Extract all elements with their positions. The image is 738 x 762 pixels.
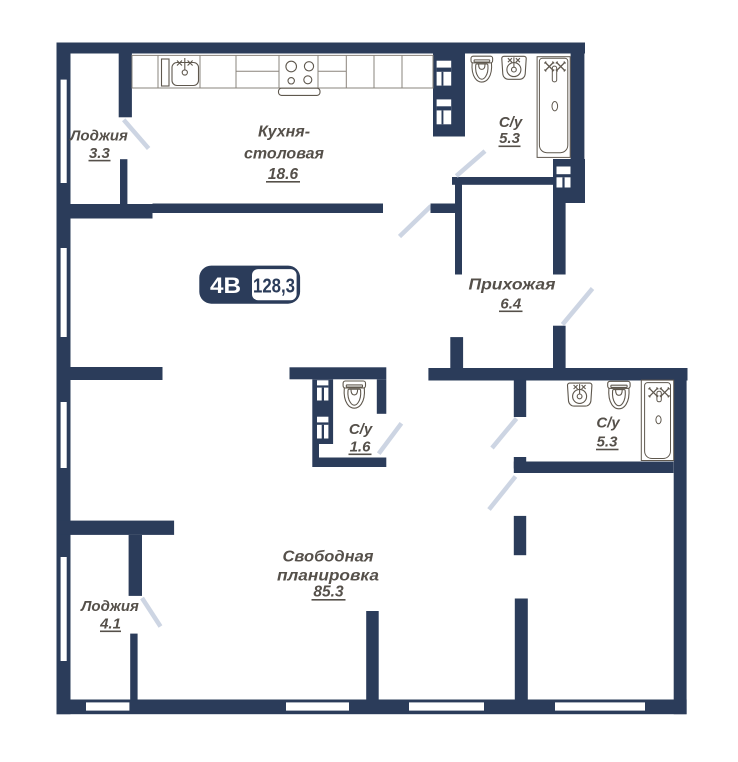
svg-text:5.3: 5.3 (499, 130, 521, 147)
svg-text:1.6: 1.6 (350, 439, 372, 456)
svg-text:Кухня-: Кухня- (258, 124, 310, 141)
svg-text:85.3: 85.3 (313, 584, 344, 601)
svg-text:Свободная: Свободная (283, 549, 375, 566)
svg-text:4.1: 4.1 (99, 616, 121, 633)
svg-text:5.3: 5.3 (597, 434, 619, 451)
svg-text:Прихожая: Прихожая (469, 277, 557, 294)
svg-text:128,3: 128,3 (253, 276, 295, 298)
svg-text:18.6: 18.6 (268, 166, 299, 183)
svg-text:планировка: планировка (277, 568, 379, 585)
svg-text:Лоджия: Лоджия (80, 598, 139, 615)
svg-text:6.4: 6.4 (500, 296, 522, 313)
svg-text:С/у: С/у (596, 415, 620, 432)
svg-text:С/у: С/у (349, 421, 373, 438)
svg-text:столовая: столовая (244, 146, 325, 163)
svg-text:Лоджия: Лоджия (69, 128, 128, 145)
svg-text:С/у: С/у (499, 114, 523, 131)
svg-text:4В: 4В (210, 273, 241, 298)
svg-text:3.3: 3.3 (89, 145, 111, 162)
